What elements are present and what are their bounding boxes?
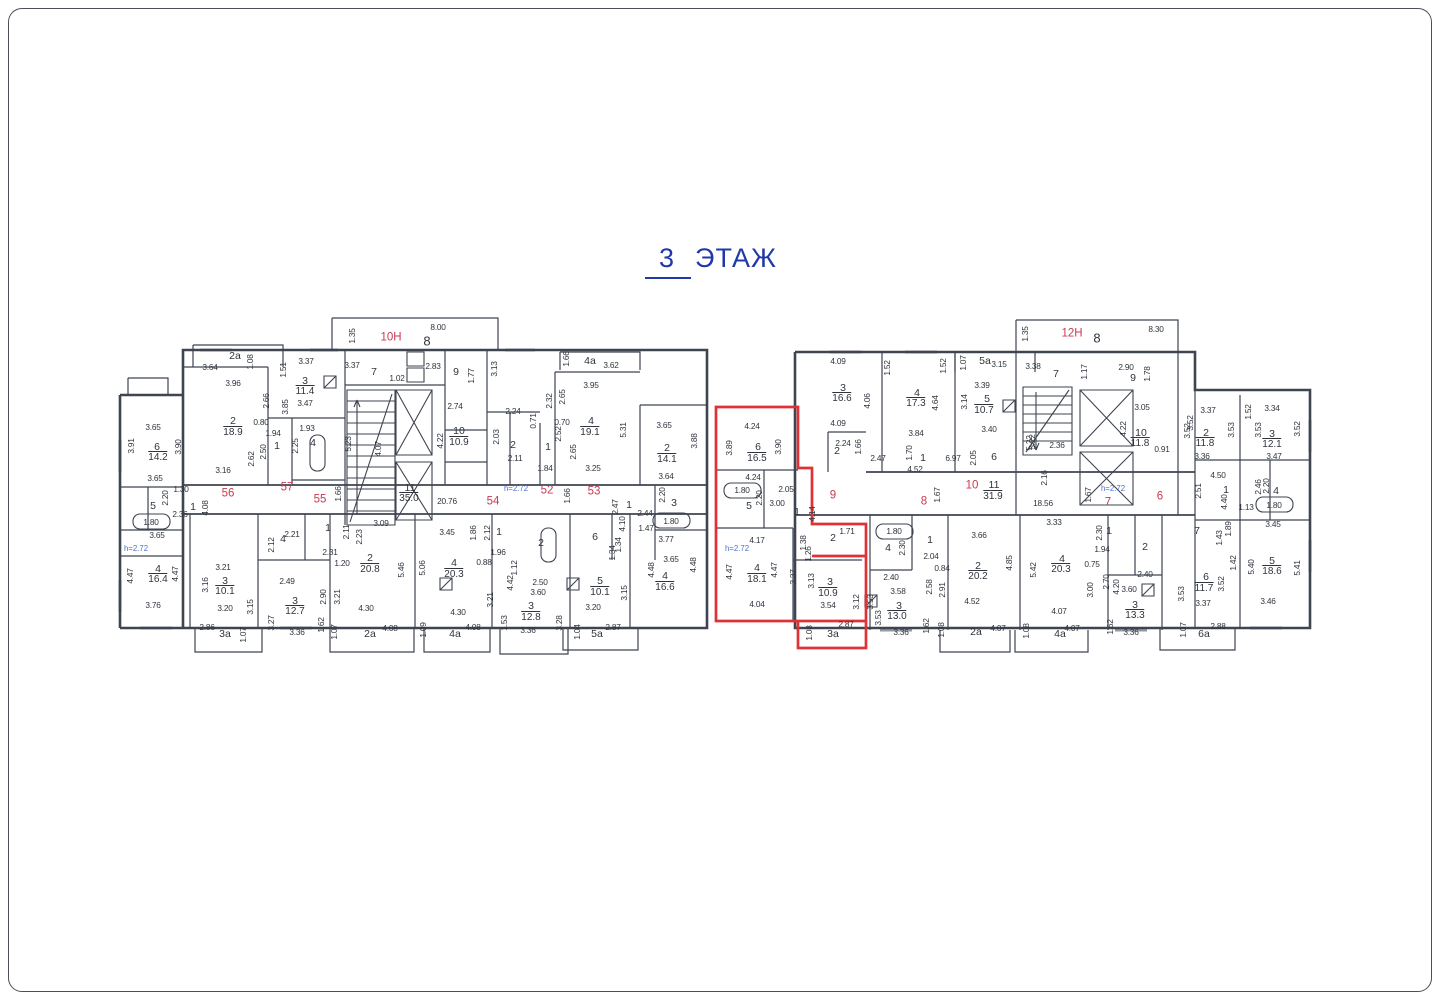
- dim-label: 4.04: [749, 600, 764, 608]
- room-number: 1: [274, 441, 280, 452]
- dim-label: 2.21: [284, 530, 299, 538]
- dim-label: 2.04: [923, 552, 938, 560]
- room-number: 2а: [229, 351, 241, 362]
- room-area: 11.4: [296, 385, 315, 397]
- dim-label: 4.22: [1119, 421, 1127, 436]
- dim-label: 3.15: [246, 599, 254, 614]
- apartment-number: 56: [222, 488, 235, 500]
- dim-label: 3.53: [1177, 586, 1185, 601]
- room-number: 2: [538, 538, 544, 549]
- dim-label: 2.16: [1040, 470, 1048, 485]
- room-number: 3: [827, 577, 833, 588]
- room-number: 5: [984, 394, 990, 405]
- dim-label: 1.34: [608, 545, 616, 560]
- room-number: 1: [1106, 526, 1112, 537]
- room-area: 12.8: [521, 611, 540, 623]
- dim-label: 3.52: [1217, 576, 1225, 591]
- dim-label: 2.30: [1095, 525, 1103, 540]
- dim-label: 0.88: [476, 558, 491, 566]
- room-area: 10.9: [449, 436, 468, 448]
- dim-label: 8.30: [1148, 325, 1163, 333]
- room-area: 13.3: [1125, 609, 1144, 621]
- room-area: 10.7: [974, 404, 993, 416]
- dim-label: 2.50: [259, 444, 267, 459]
- dim-label: 4.17: [749, 536, 764, 544]
- dim-label: 8.00: [430, 323, 445, 331]
- dim-label: 2.50: [532, 578, 547, 586]
- dim-label: 3.09: [373, 519, 388, 527]
- room-number: 3а: [219, 629, 231, 640]
- dim-label: 4.24: [745, 473, 760, 481]
- height-note: h=2.72: [504, 485, 528, 493]
- dim-label: 2.62: [247, 451, 255, 466]
- room-number: 6а: [1198, 629, 1210, 640]
- dim-label: 1.52: [883, 360, 891, 375]
- dim-label: 4.07: [990, 624, 1005, 632]
- dim-label: 5.06: [418, 560, 426, 575]
- room-number: 6: [1203, 572, 1209, 583]
- dim-label: 1.89: [1224, 521, 1232, 536]
- dim-label: 1.96: [490, 548, 505, 556]
- dim-label: 4.42: [506, 575, 514, 590]
- dim-label: 1.80: [663, 517, 678, 525]
- dim-label: 0.70: [554, 418, 569, 426]
- dim-label: 3.88: [690, 433, 698, 448]
- room-number: 2: [1142, 542, 1148, 553]
- dim-label: 4.14: [808, 506, 816, 521]
- room-number: 4а: [584, 356, 596, 367]
- room-number: 4а: [449, 629, 461, 640]
- dim-label: 0.71: [529, 413, 537, 428]
- dim-label: 2.32: [545, 393, 553, 408]
- dim-label: 5.40: [1247, 559, 1255, 574]
- labels-layer: 1.3510Н88.003.3771.022.8391.772.745.234.…: [0, 0, 1440, 1000]
- dim-label: 1.62: [1106, 619, 1114, 634]
- room-area: 12.7: [285, 605, 304, 617]
- dim-label: 3.76: [145, 601, 160, 609]
- dim-label: 0.75: [1084, 560, 1099, 568]
- dim-label: 2.83: [425, 362, 440, 370]
- dim-label: 3.64: [658, 472, 673, 480]
- apartment-number: 10Н: [380, 332, 401, 344]
- dim-label: 3.65: [145, 423, 160, 431]
- dim-label: 4.85: [1005, 555, 1013, 570]
- room-number: 1: [927, 535, 933, 546]
- room-area: 16.6: [832, 392, 851, 404]
- room-number: 9: [453, 367, 459, 378]
- dim-label: 3.45: [439, 528, 454, 536]
- room-number: 7: [371, 367, 377, 378]
- dim-label: 2.31: [322, 548, 337, 556]
- dim-label: 4.52: [964, 597, 979, 605]
- dim-label: 1.08: [937, 622, 945, 637]
- dim-label: 2.74: [447, 402, 462, 410]
- dim-label: 3.36: [1194, 452, 1209, 460]
- dim-label: 4.07: [1051, 607, 1066, 615]
- apartment-number: 57: [281, 482, 294, 494]
- dim-label: 3.54: [820, 601, 835, 609]
- room-number: 1: [920, 453, 926, 464]
- room-number: 4: [885, 543, 891, 554]
- room-number: 4: [1273, 486, 1279, 497]
- dim-label: 1.08: [1022, 623, 1030, 638]
- dim-label: 4.20: [1112, 579, 1120, 594]
- dim-label: 2.40: [1137, 570, 1152, 578]
- dim-label: 3.45: [1265, 520, 1280, 528]
- room-area: 10.1: [590, 586, 609, 598]
- height-note: h=2.72: [725, 545, 749, 553]
- room-number: 5: [597, 576, 603, 587]
- dim-label: 2.20: [1262, 478, 1270, 493]
- dim-label: 4.07: [374, 441, 382, 456]
- dim-label: 2.36: [172, 510, 187, 518]
- room-area: 18.9: [223, 426, 242, 438]
- dim-label: 2.12: [483, 525, 491, 540]
- dim-label: 1.66: [854, 439, 862, 454]
- dim-label: 1.09: [419, 622, 427, 637]
- room-number: 9: [1130, 373, 1136, 384]
- dim-label: 3.21: [486, 592, 494, 607]
- dim-label: 4.07: [1064, 624, 1079, 632]
- dim-label: 3.60: [1121, 585, 1136, 593]
- dim-label: 2.49: [279, 577, 294, 585]
- room-number: 1: [496, 527, 502, 538]
- dim-label: 3.00: [769, 499, 784, 507]
- dim-label: 3.15: [991, 360, 1006, 368]
- dim-label: 2.52: [554, 426, 562, 441]
- room-area: 12.1: [1262, 438, 1281, 450]
- dim-label: 3.77: [658, 535, 673, 543]
- dim-label: 1.71: [839, 527, 854, 535]
- dim-label: 5.23: [344, 436, 352, 451]
- apartment-number: 12Н: [1061, 328, 1082, 340]
- room-number: 2: [664, 443, 670, 454]
- dim-label: 1.52: [1244, 404, 1252, 419]
- dim-label: 0.80: [253, 418, 268, 426]
- dim-label: 3.53: [874, 610, 882, 625]
- dim-label: 5.22: [1028, 434, 1036, 449]
- room-number: 4: [451, 558, 457, 569]
- dim-label: 3.64: [202, 363, 217, 371]
- dim-label: 3.27: [267, 615, 275, 630]
- dim-label: 1.17: [1080, 364, 1088, 379]
- apartment-number: 8: [921, 496, 927, 508]
- dim-label: 1.07: [239, 627, 247, 642]
- dim-label: 3.62: [603, 361, 618, 369]
- room-number: 1: [325, 523, 331, 534]
- apartment-number: 54: [487, 496, 500, 508]
- dim-label: 1.66: [563, 488, 571, 503]
- dim-label: 3.40: [981, 425, 996, 433]
- room-number: 1: [794, 507, 800, 518]
- dim-label: 2.40: [883, 573, 898, 581]
- dim-label: 3.20: [217, 604, 232, 612]
- room-area: 35.0: [399, 492, 418, 504]
- room-area: 13.0: [887, 610, 906, 622]
- dim-label: 2.03: [492, 429, 500, 444]
- dim-label: 3.47: [297, 399, 312, 407]
- dim-label: 1.04: [573, 624, 581, 639]
- dim-label: 4.47: [725, 564, 733, 579]
- dim-label: 3.65: [147, 474, 162, 482]
- dim-label: 4.24: [744, 422, 759, 430]
- apartment-number: 53: [588, 486, 601, 498]
- room-number: 11: [989, 480, 1000, 491]
- dim-label: 3.89: [725, 440, 733, 455]
- room-area: 14.2: [148, 451, 167, 463]
- room-number: 7: [1194, 526, 1200, 537]
- dim-label: 1.77: [467, 368, 475, 383]
- dim-label: 4.47: [126, 568, 134, 583]
- dim-label: 1.62: [317, 617, 325, 632]
- room-number: 7: [1053, 369, 1059, 380]
- dim-label: 2.44: [637, 509, 652, 517]
- dim-label: 3.65: [149, 531, 164, 539]
- height-note: h=2.72: [124, 545, 148, 553]
- dim-label: 2.65: [569, 444, 577, 459]
- dim-label: 2.90: [1118, 363, 1133, 371]
- dim-label: 2.24: [505, 407, 520, 415]
- dim-label: 1.80: [886, 527, 901, 535]
- dim-label: 4.48: [689, 557, 697, 572]
- room-number: 1: [626, 500, 632, 511]
- dim-label: 2.70: [1102, 574, 1110, 589]
- dim-label: 3.60: [530, 588, 545, 596]
- dim-label: 1.84: [537, 464, 552, 472]
- dim-label: 2.87: [838, 620, 853, 628]
- dim-label: 3.15: [620, 585, 628, 600]
- room-area: 31.9: [983, 490, 1002, 502]
- dim-label: 4.40: [1220, 494, 1228, 509]
- dim-label: 2.20: [161, 490, 169, 505]
- room-number: 4: [310, 438, 316, 449]
- dim-label: 3.38: [1025, 362, 1040, 370]
- dim-label: 3.28: [555, 615, 563, 630]
- dim-label: 1.70: [905, 445, 913, 460]
- dim-label: 1.80: [1266, 501, 1281, 509]
- dim-label: 4.08: [382, 624, 397, 632]
- room-number: 2: [230, 416, 236, 427]
- room-number: 5а: [979, 356, 991, 367]
- dim-label: 2.65: [558, 389, 566, 404]
- dim-label: 3.36: [1123, 628, 1138, 636]
- dim-label: 3.96: [225, 379, 240, 387]
- room-number: 5а: [591, 629, 603, 640]
- dim-label: 2.25: [291, 438, 299, 453]
- dim-label: 1.52: [939, 358, 947, 373]
- apartment-number: 7: [1105, 497, 1111, 509]
- dim-label: 1.02: [389, 374, 404, 382]
- dim-label: 4.64: [931, 395, 939, 410]
- dim-label: 3.52: [1183, 423, 1191, 438]
- dim-label: 3.53: [866, 594, 874, 609]
- dim-label: 1.07: [959, 355, 967, 370]
- room-number: 3: [528, 601, 534, 612]
- room-area: 20.3: [444, 568, 463, 580]
- dim-label: 1.80: [734, 486, 749, 494]
- room-number: 2: [367, 553, 373, 564]
- apartment-number: 6: [1157, 491, 1163, 503]
- dim-label: 5.31: [619, 422, 627, 437]
- dim-label: 4.08: [201, 500, 209, 515]
- dim-label: 1.62: [922, 618, 930, 633]
- room-area: 18.1: [747, 573, 766, 585]
- dim-label: 4.52: [907, 465, 922, 473]
- dim-label: 3.58: [890, 587, 905, 595]
- dim-label: 2.11: [508, 454, 523, 462]
- dim-label: 4.08: [465, 623, 480, 631]
- room-area: 16.6: [655, 581, 674, 593]
- dim-label: 1.94: [1094, 545, 1109, 553]
- dim-label: 3.65: [663, 555, 678, 563]
- room-number: 6: [755, 442, 761, 453]
- room-number: 4: [280, 534, 286, 545]
- dim-label: 3.37: [298, 357, 313, 365]
- dim-label: 3.37: [344, 361, 359, 369]
- floor-plan-page: 3ЭТАЖ: [0, 0, 1440, 1000]
- room-area: 18.6: [1262, 565, 1281, 577]
- dim-label: 2.66: [262, 393, 270, 408]
- dim-label: 2.87: [605, 623, 620, 631]
- dim-label: 2.86: [199, 623, 214, 631]
- room-number: 10: [453, 426, 465, 437]
- dim-label: 1.53: [500, 615, 508, 630]
- apartment-number: 10: [966, 480, 979, 492]
- dim-label: 1.42: [1229, 555, 1237, 570]
- dim-label: 0.91: [1154, 445, 1169, 453]
- dim-label: 1.66: [334, 486, 342, 501]
- room-number: 6: [991, 452, 997, 463]
- dim-label: 3.52: [1293, 421, 1301, 436]
- apartment-number: 55: [314, 494, 327, 506]
- room-number: 5: [746, 501, 752, 512]
- apartment-number: 52: [541, 485, 554, 497]
- dim-label: 2.05: [969, 450, 977, 465]
- dim-label: 3.66: [971, 531, 986, 539]
- dim-label: 4.48: [647, 562, 655, 577]
- room-number: 2а: [364, 629, 376, 640]
- dim-label: 3.14: [960, 394, 968, 409]
- room-area: 10.9: [818, 587, 837, 599]
- room-area: 10.1: [215, 585, 234, 597]
- dim-label: 2.24: [835, 439, 850, 447]
- dim-label: 3.85: [281, 399, 289, 414]
- room-number: 5: [150, 501, 156, 512]
- dim-label: 1.07: [330, 624, 338, 639]
- dim-label: 4.47: [171, 566, 179, 581]
- dim-label: 18.56: [1033, 499, 1053, 507]
- room-area: 11.7: [1195, 582, 1214, 594]
- dim-label: 3.00: [1086, 582, 1094, 597]
- dim-label: 1.13: [1238, 503, 1253, 511]
- dim-label: 1.78: [1143, 366, 1151, 381]
- apartment-number: 9: [830, 490, 836, 502]
- dim-label: 1.12: [510, 560, 518, 575]
- dim-label: 3.20: [585, 603, 600, 611]
- dim-label: 2.30: [898, 540, 906, 555]
- dim-label: 3.37: [1200, 406, 1215, 414]
- dim-label: 3.36: [289, 628, 304, 636]
- dim-label: 3.65: [656, 421, 671, 429]
- dim-label: 2.12: [267, 537, 275, 552]
- room-number: 3: [671, 498, 677, 509]
- dim-label: 3.25: [585, 464, 600, 472]
- dim-label: 4.10: [618, 516, 626, 531]
- dim-label: 4.47: [770, 562, 778, 577]
- room-area: 11.8: [1196, 437, 1215, 449]
- dim-label: 3.36: [520, 626, 535, 634]
- room-area: 20.3: [1051, 563, 1070, 575]
- dim-label: 2.11: [342, 525, 350, 540]
- room-area: 14.1: [657, 453, 676, 465]
- dim-label: 4.30: [358, 604, 373, 612]
- room-number: 1: [190, 502, 196, 513]
- dim-label: 1.08: [805, 625, 813, 640]
- dim-label: 1.07: [1179, 622, 1187, 637]
- dim-label: 4.09: [830, 357, 845, 365]
- dim-label: 3.53: [1227, 422, 1235, 437]
- dim-label: 4.22: [436, 433, 444, 448]
- dim-label: 4.09: [830, 419, 845, 427]
- dim-label: 3.21: [333, 589, 341, 604]
- room-number: 4: [588, 416, 594, 427]
- dim-label: 2.05: [778, 485, 793, 493]
- dim-label: 2.88: [1210, 622, 1225, 630]
- dim-label: 5.41: [1293, 560, 1301, 575]
- dim-label: 1.93: [299, 424, 314, 432]
- room-area: 16.5: [747, 452, 766, 464]
- dim-label: 3.21: [215, 563, 230, 571]
- dim-label: 1.66: [562, 351, 570, 366]
- dim-label: 1.35: [348, 328, 356, 343]
- dim-label: 3.12: [852, 594, 860, 609]
- dim-label: 4.30: [450, 608, 465, 616]
- room-area: 20.2: [968, 570, 987, 582]
- dim-label: 3.95: [583, 381, 598, 389]
- dim-label: 2.90: [319, 589, 327, 604]
- room-area: 11.8: [1131, 437, 1150, 449]
- dim-label: 3.90: [774, 439, 782, 454]
- room-number: 4: [754, 563, 760, 574]
- dim-label: 3.16: [201, 577, 209, 592]
- dim-label: 3.13: [807, 573, 815, 588]
- dim-label: 1.51: [279, 362, 287, 377]
- dim-label: 20.76: [437, 497, 457, 505]
- room-area: 19.1: [580, 426, 599, 438]
- room-number: 6: [592, 532, 598, 543]
- room-number: 3а: [827, 629, 839, 640]
- dim-label: 1.67: [1084, 487, 1092, 502]
- room-area: 16.4: [148, 573, 167, 585]
- dim-label: 2.58: [925, 579, 933, 594]
- dim-label: 3.39: [974, 381, 989, 389]
- dim-label: 1.08: [246, 354, 254, 369]
- dim-label: 3.37: [1195, 599, 1210, 607]
- dim-label: 5.46: [397, 562, 405, 577]
- dim-label: 3.91: [127, 438, 135, 453]
- dim-label: 3.13: [490, 361, 498, 376]
- dim-label: 2.51: [1194, 483, 1202, 498]
- dim-label: 3.47: [1266, 452, 1281, 460]
- room-area: 17.3: [906, 397, 925, 409]
- dim-label: 2.91: [938, 582, 946, 597]
- dim-label: 3.84: [908, 429, 923, 437]
- dim-label: 3.37: [789, 569, 797, 584]
- dim-label: 2.47: [870, 454, 885, 462]
- dim-label: 1.86: [469, 525, 477, 540]
- dim-label: 1.26: [804, 546, 812, 561]
- entrance-number: 8: [1093, 332, 1100, 345]
